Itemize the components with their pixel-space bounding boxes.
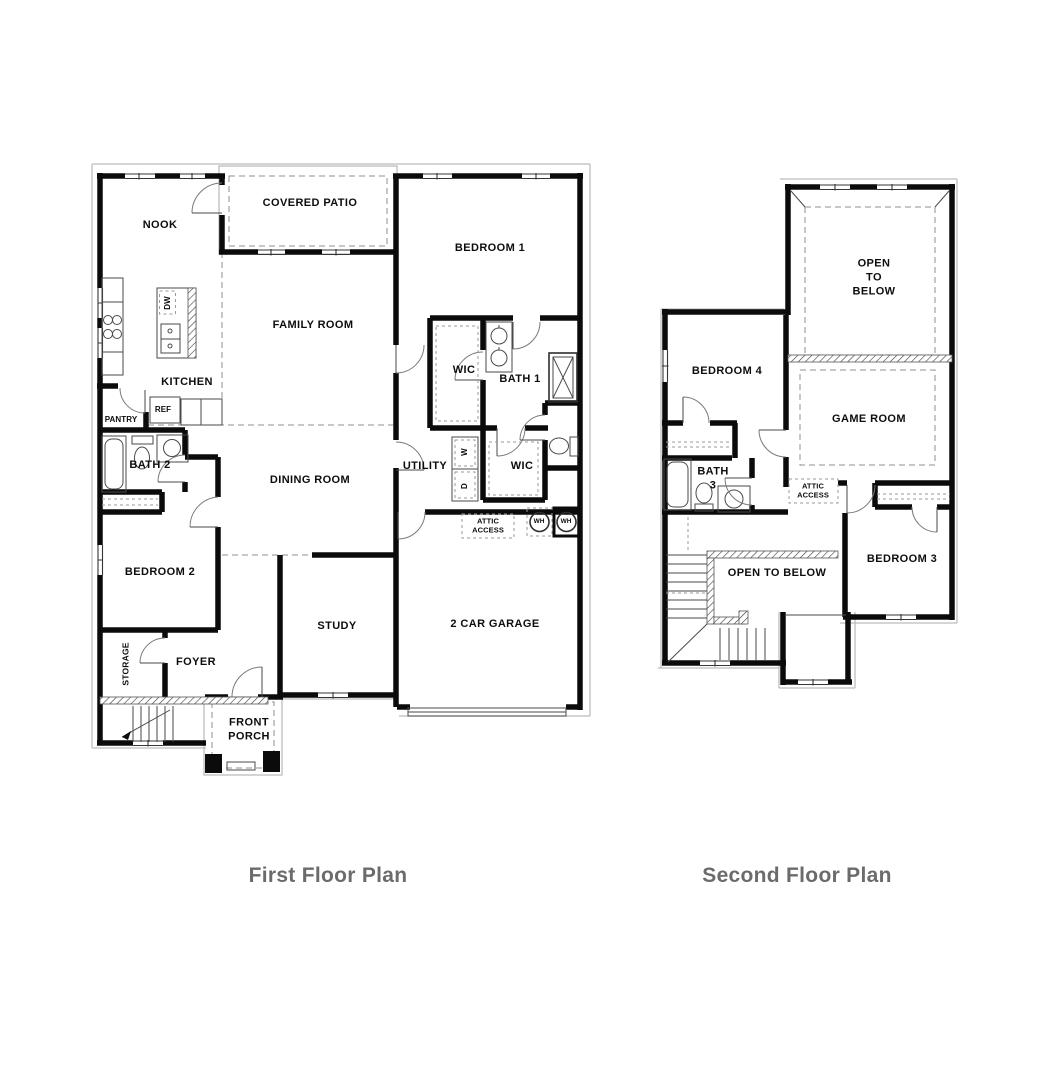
room-label-pantry: PANTRY	[105, 415, 138, 425]
room-label-utility: UTILITY	[403, 460, 447, 474]
room-label-foyer: FOYER	[176, 656, 216, 670]
room-label-covered-patio: COVERED PATIO	[263, 197, 358, 211]
room-label-nook: NOOK	[143, 219, 178, 233]
room-label-garage: 2 CAR GARAGE	[450, 618, 539, 632]
floor-plan-page: NOOK COVERED PATIO BEDROOM 1 FAMILY ROOM…	[0, 0, 1050, 1070]
room-label-bath1: BATH 1	[499, 373, 540, 387]
room-label-kitchen: KITCHEN	[161, 376, 213, 390]
room-label-family-room: FAMILY ROOM	[273, 319, 354, 333]
attic-access-label-first: ATTIC ACCESS	[472, 517, 504, 534]
room-label-bath3: BATH 3	[697, 465, 728, 493]
room-label-bedroom1: BEDROOM 1	[455, 242, 525, 256]
caption-first-floor-plan: First Floor Plan	[249, 864, 408, 888]
room-label-wic-bedroom1: WIC	[453, 364, 476, 378]
dryer-label: D	[460, 483, 470, 489]
room-label-storage: STORAGE	[121, 642, 132, 685]
room-label-study: STUDY	[317, 620, 356, 634]
room-label-bedroom2: BEDROOM 2	[125, 566, 195, 580]
room-label-open-to-below-upper: OPEN TO BELOW	[853, 257, 896, 298]
room-label-dining-room: DINING ROOM	[270, 474, 350, 488]
room-label-bath2: BATH 2	[129, 459, 170, 473]
water-heater-label-right: WH	[561, 518, 572, 526]
caption-second-floor-plan: Second Floor Plan	[702, 864, 891, 888]
water-heater-label-left: WH	[534, 518, 545, 526]
room-label-open-to-below-stair: OPEN TO BELOW	[728, 567, 827, 581]
floor-plan-linework	[0, 0, 1050, 1070]
room-label-game-room: GAME ROOM	[832, 413, 906, 427]
ref-label: REF	[155, 405, 171, 415]
washer-label: W	[460, 448, 470, 456]
room-label-bedroom3: BEDROOM 3	[867, 553, 937, 567]
room-label-front-porch: FRONT PORCH	[228, 716, 270, 744]
dishwasher-label: DW	[163, 296, 173, 310]
second-floor-drawing	[658, 179, 957, 688]
attic-access-label-second: ATTIC ACCESS	[797, 482, 829, 499]
room-label-wic-hall: WIC	[511, 460, 534, 474]
room-label-bedroom4: BEDROOM 4	[692, 365, 762, 379]
